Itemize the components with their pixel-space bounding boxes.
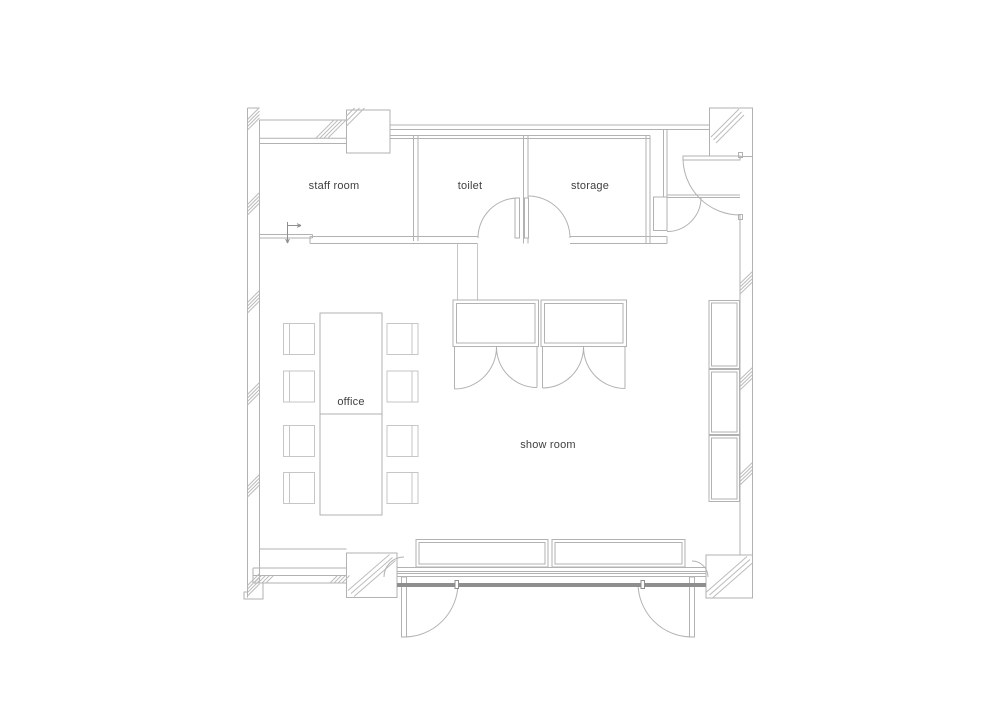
display-case-bottom-right	[552, 540, 685, 568]
label-toilet: toilet	[458, 180, 482, 192]
floor-plan-page: staff room toilet storage office show ro…	[0, 0, 1000, 708]
display-cases	[416, 300, 740, 567]
storefront	[397, 568, 706, 589]
side-entrance-door	[683, 153, 743, 220]
chair	[387, 473, 418, 504]
chair	[387, 426, 418, 457]
entrance-door-right	[638, 561, 708, 637]
staff-room-slide-symbol	[286, 222, 301, 243]
top-band-hatch	[316, 120, 346, 138]
entrance-door-left-swing-arc	[404, 583, 458, 637]
chair	[284, 371, 315, 402]
right-wall	[740, 157, 753, 556]
chair	[284, 473, 315, 504]
left-wall	[244, 108, 263, 599]
toilet-door-swing-arc	[478, 198, 518, 238]
label-show-room: show room	[520, 439, 576, 451]
rooms-top-wall	[390, 136, 650, 139]
interior-walls	[260, 130, 741, 300]
vestibule-door-swing-arc	[667, 198, 701, 232]
vestibule-door	[654, 197, 702, 232]
room-labels: staff room toilet storage office show ro…	[309, 180, 609, 451]
left-wall-foot	[244, 583, 263, 599]
top-wall	[390, 125, 710, 130]
display-case-center-left	[453, 300, 539, 389]
storefront-glazing-lines	[397, 568, 706, 577]
case-door-arc	[497, 347, 538, 388]
door-stop-right	[641, 581, 645, 589]
label-storage: storage	[571, 180, 609, 192]
chair	[284, 426, 315, 457]
chair	[284, 324, 315, 355]
storage-right-wall	[646, 136, 650, 244]
side-entrance-door-leaf	[683, 156, 740, 160]
showroom-north-wall	[310, 237, 667, 244]
case-door-arc	[455, 347, 497, 389]
vestibule-west-wall	[664, 130, 668, 197]
entrance-door-right-swing-arc	[638, 583, 692, 637]
vestibule-door-leaf	[654, 197, 668, 231]
display-case-center-right	[541, 300, 627, 389]
wall-staffroom-toilet	[414, 136, 419, 242]
office-table	[320, 313, 382, 515]
display-case-bottom-left	[416, 540, 548, 568]
display-case-right-2	[709, 370, 740, 435]
office-furniture	[284, 313, 419, 515]
storefront-threshold	[397, 583, 706, 587]
column-top-left	[347, 110, 391, 153]
case-door-arc	[584, 347, 626, 389]
door-stop-left	[455, 581, 459, 589]
chair	[387, 371, 418, 402]
toilet-door	[478, 198, 520, 238]
bottom-strip-hatch	[254, 576, 350, 584]
side-entrance-door-swing-arc	[683, 158, 740, 215]
staff-room-bottom-wall	[260, 235, 313, 239]
storage-door	[525, 196, 571, 238]
vestibule-partition	[667, 195, 740, 198]
left-wall-hatch	[248, 108, 260, 597]
chair	[387, 324, 418, 355]
right-wall-hatch	[740, 272, 753, 486]
storage-door-leaf	[525, 198, 529, 238]
columns	[347, 108, 753, 598]
case-door-arc	[543, 347, 584, 388]
display-case-right-3	[709, 436, 740, 502]
showroom-partition-stubs	[458, 244, 478, 301]
storage-door-swing-arc	[528, 196, 570, 238]
label-office: office	[337, 396, 364, 408]
toilet-door-leaf	[515, 198, 520, 238]
display-case-right-1	[709, 301, 740, 369]
label-staff-room: staff room	[309, 180, 360, 192]
floor-plan-drawing: staff room toilet storage office show ro…	[0, 0, 1000, 708]
